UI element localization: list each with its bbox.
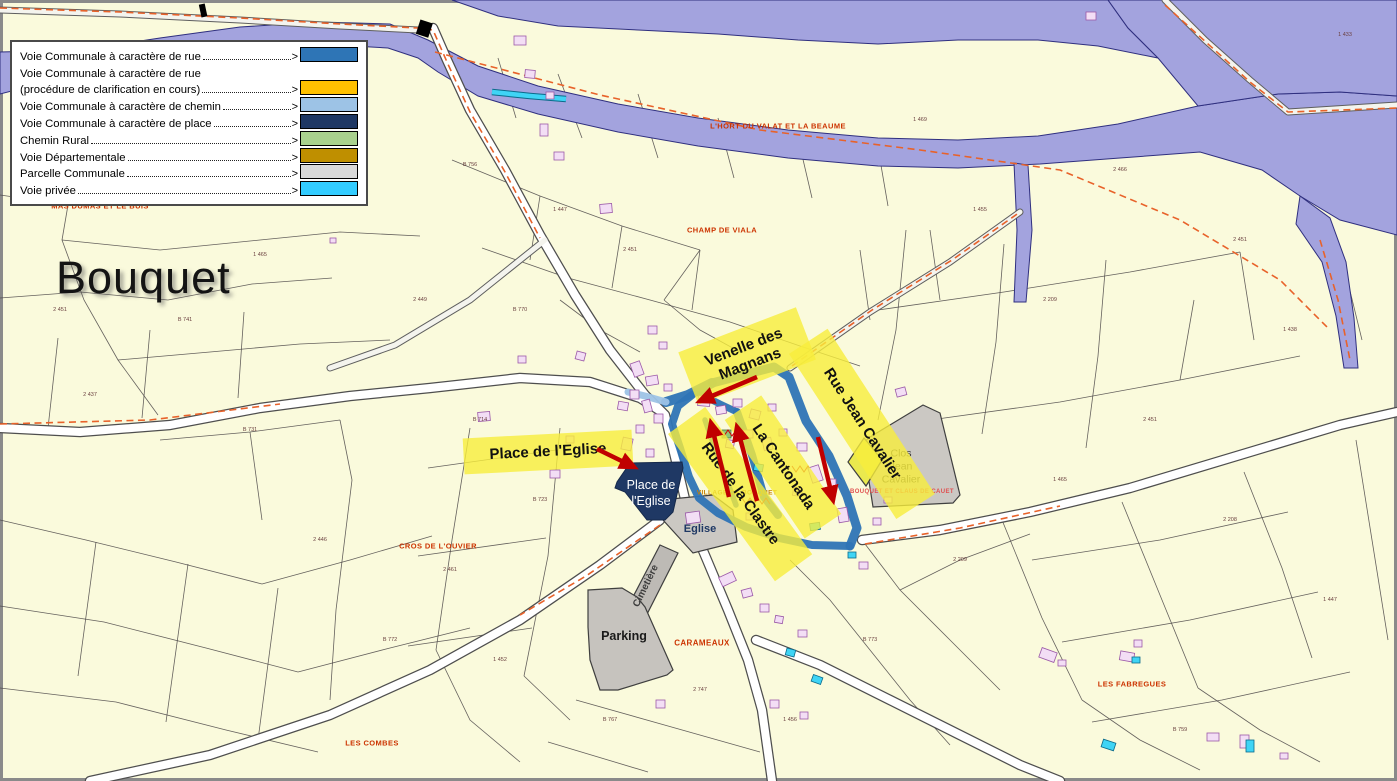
- legend-arrow: >: [292, 135, 298, 147]
- parcel-number: 2 437: [83, 392, 97, 398]
- parcel-number: 1 452: [493, 657, 507, 663]
- locality-label: LES COMBES: [345, 739, 399, 748]
- legend-row: Voie Communale à caractère de place >: [20, 113, 358, 130]
- building: [546, 92, 554, 99]
- legend-row: Voie Communale à caractère de rue: [20, 63, 358, 80]
- river-top-strip: [452, 0, 1158, 58]
- parcel-number: 2 747: [693, 687, 707, 693]
- building: [741, 588, 753, 598]
- place-square-line: l'Eglise: [627, 493, 676, 509]
- pool: [848, 552, 856, 558]
- building: [550, 470, 560, 478]
- parcel-number: B 772: [383, 637, 397, 643]
- parcel-number: 1 438: [1283, 327, 1297, 333]
- legend-label: Parcelle Communale: [20, 168, 125, 180]
- building: [873, 518, 881, 525]
- building: [859, 562, 868, 569]
- building: [656, 700, 665, 708]
- parcel-number: B 759: [1173, 727, 1187, 733]
- building: [1207, 733, 1219, 741]
- building: [645, 375, 658, 386]
- locality-label: LES FABREGUES: [1098, 680, 1167, 689]
- building: [733, 399, 742, 407]
- parcel-number: 2 461: [443, 567, 457, 573]
- locality-label: CROS DE L'OUVIER: [399, 542, 477, 551]
- legend-label: Voie privée: [20, 185, 76, 197]
- parcel-number: 2 466: [1113, 167, 1127, 173]
- building: [715, 405, 726, 415]
- eglise-label: Eglise: [684, 523, 716, 535]
- legend-label: Voie Communale à caractère de rue: [20, 68, 201, 80]
- building: [798, 630, 807, 637]
- building: [760, 604, 769, 612]
- building: [895, 387, 907, 397]
- building: [540, 124, 548, 136]
- legend-swatch-departementale: [300, 148, 358, 163]
- building: [646, 449, 654, 457]
- parcel-number: B 767: [603, 717, 617, 723]
- legend-swatch-place: [300, 114, 358, 129]
- parcel-number: B 723: [533, 497, 547, 503]
- building: [1039, 648, 1057, 663]
- building: [525, 70, 536, 79]
- pool: [811, 675, 823, 685]
- legend-swatch-parcelle: [300, 164, 358, 179]
- map-canvas: MAS DUMAS ET LE BUISL'HORT DU VALAT ET L…: [0, 0, 1397, 781]
- building: [636, 425, 644, 433]
- place-square-line: Place de: [627, 477, 676, 493]
- legend-leader: [223, 109, 291, 110]
- building: [659, 342, 667, 349]
- legend-leader: [91, 143, 291, 144]
- parcel-number: 1 447: [553, 207, 567, 213]
- legend-swatch-privee: [300, 181, 358, 196]
- legend-label: Voie Communale à caractère de chemin: [20, 101, 221, 113]
- legend-row: Chemin Rural >: [20, 130, 358, 147]
- legend-label: Voie Communale à caractère de rue: [20, 51, 201, 63]
- parcel-number: 1 447: [1323, 597, 1337, 603]
- river-finger: [1014, 163, 1032, 302]
- building: [1058, 660, 1066, 666]
- parcel-number: 1 465: [1053, 477, 1067, 483]
- parcel-number: 1 433: [1338, 32, 1352, 38]
- legend-arrow: >: [292, 101, 298, 113]
- legend-row: Voie privée >: [20, 180, 358, 197]
- legend-swatch-rue: [300, 47, 358, 62]
- building: [630, 390, 639, 399]
- legend-label: Chemin Rural: [20, 135, 89, 147]
- parcel-number: 1 469: [913, 117, 927, 123]
- legend-leader: [128, 160, 291, 161]
- parcel-number: B 741: [178, 317, 192, 323]
- building: [774, 615, 783, 623]
- building: [770, 700, 779, 708]
- parcel-number: 1 455: [973, 207, 987, 213]
- legend-swatch-clarification: [300, 80, 358, 95]
- legend-arrow: >: [292, 185, 298, 197]
- parcel-number: 2 446: [313, 537, 327, 543]
- building: [554, 152, 564, 160]
- building: [1280, 753, 1288, 759]
- locality-label: L'HORT DU VALAT ET LA BEAUME: [710, 122, 846, 131]
- building: [514, 36, 526, 45]
- legend-arrow: >: [292, 168, 298, 180]
- legend-arrow: >: [292, 118, 298, 130]
- legend-label: (procédure de clarification en cours): [20, 84, 200, 96]
- parcel-number: 2 451: [1143, 417, 1157, 423]
- locality-label: CARAMEAUX: [674, 639, 730, 648]
- parcel-number: 2 209: [953, 557, 967, 563]
- place-square-label: Place de l'Eglise: [627, 477, 676, 510]
- building: [1086, 12, 1096, 20]
- legend-leader: [203, 59, 291, 60]
- parcel-number: 2 449: [413, 297, 427, 303]
- parcel-number: B 773: [863, 637, 877, 643]
- bridge-icon: [416, 19, 433, 37]
- parcel-number: B 756: [463, 162, 477, 168]
- parcel-number: B 731: [243, 427, 257, 433]
- pool: [1246, 740, 1254, 752]
- building: [518, 356, 526, 363]
- legend-label: Voie Communale à caractère de place: [20, 118, 212, 130]
- building: [1134, 640, 1142, 647]
- parcel-number: 2 451: [623, 247, 637, 253]
- building: [800, 712, 808, 719]
- legend-leader: [78, 193, 291, 194]
- building: [617, 401, 628, 411]
- pool: [1101, 739, 1116, 751]
- parcel-number: 2 451: [53, 307, 67, 313]
- legend-row: Voie Départementale >: [20, 147, 358, 164]
- parcel-number: 2 208: [1223, 517, 1237, 523]
- parcel-number: B 714: [473, 417, 487, 423]
- building: [600, 203, 613, 213]
- legend-arrow: >: [292, 152, 298, 164]
- legend-label: Voie Départementale: [20, 152, 126, 164]
- legend-box: Voie Communale à caractère de rue > Voie…: [10, 40, 368, 206]
- legend-swatch-chemin-rural: [300, 131, 358, 146]
- legend-leader: [127, 176, 291, 177]
- legend-row: (procédure de clarification en cours) >: [20, 80, 358, 97]
- building: [654, 414, 663, 423]
- parcel-number: 1 465: [253, 252, 267, 258]
- building: [648, 326, 657, 334]
- building: [828, 479, 836, 489]
- legend-arrow: >: [292, 84, 298, 96]
- pool: [1132, 657, 1140, 663]
- locality-label: CHAMP DE VIALA: [687, 226, 757, 235]
- legend-swatch-chemin: [300, 97, 358, 112]
- building: [575, 351, 586, 361]
- legend-row: Voie Communale à caractère de rue >: [20, 46, 358, 63]
- legend-row: Parcelle Communale >: [20, 164, 358, 181]
- legend-leader: [214, 126, 291, 127]
- legend-row: Voie Communale à caractère de chemin >: [20, 96, 358, 113]
- building: [330, 238, 336, 243]
- parcel-number: 1 456: [783, 717, 797, 723]
- building: [664, 384, 672, 391]
- legend-arrow: >: [292, 51, 298, 63]
- parcel-number: 2 209: [1043, 297, 1057, 303]
- commune-title: Bouquet: [56, 252, 231, 304]
- parcel-number: B 770: [513, 307, 527, 313]
- building: [685, 511, 700, 524]
- parking-label: Parking: [601, 629, 647, 643]
- legend-leader: [202, 92, 290, 93]
- parcel-number: 2 451: [1233, 237, 1247, 243]
